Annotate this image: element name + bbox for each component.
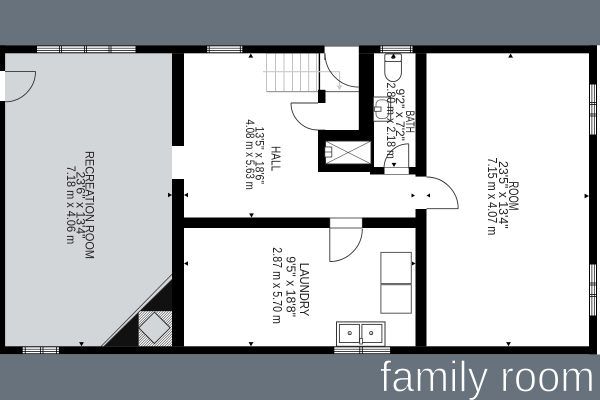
svg-text:9'5" x 18'8": 9'5" x 18'8" [283,256,297,317]
svg-text:7.18 m x 4.06 m: 7.18 m x 4.06 m [64,166,76,245]
svg-text:HALL: HALL [269,146,283,171]
svg-text:LAUNDRY: LAUNDRY [297,263,312,317]
svg-text:4.08 m x 5.63 m: 4.08 m x 5.63 m [243,119,257,189]
svg-text:2.80 m x 2.18 m: 2.80 m x 2.18 m [384,82,398,159]
svg-text:2.87 m x 5.70 m: 2.87 m x 5.70 m [270,247,284,324]
svg-text:7.15 m x 4.07 m: 7.15 m x 4.07 m [485,157,499,235]
svg-text:family room: family room [380,353,595,400]
